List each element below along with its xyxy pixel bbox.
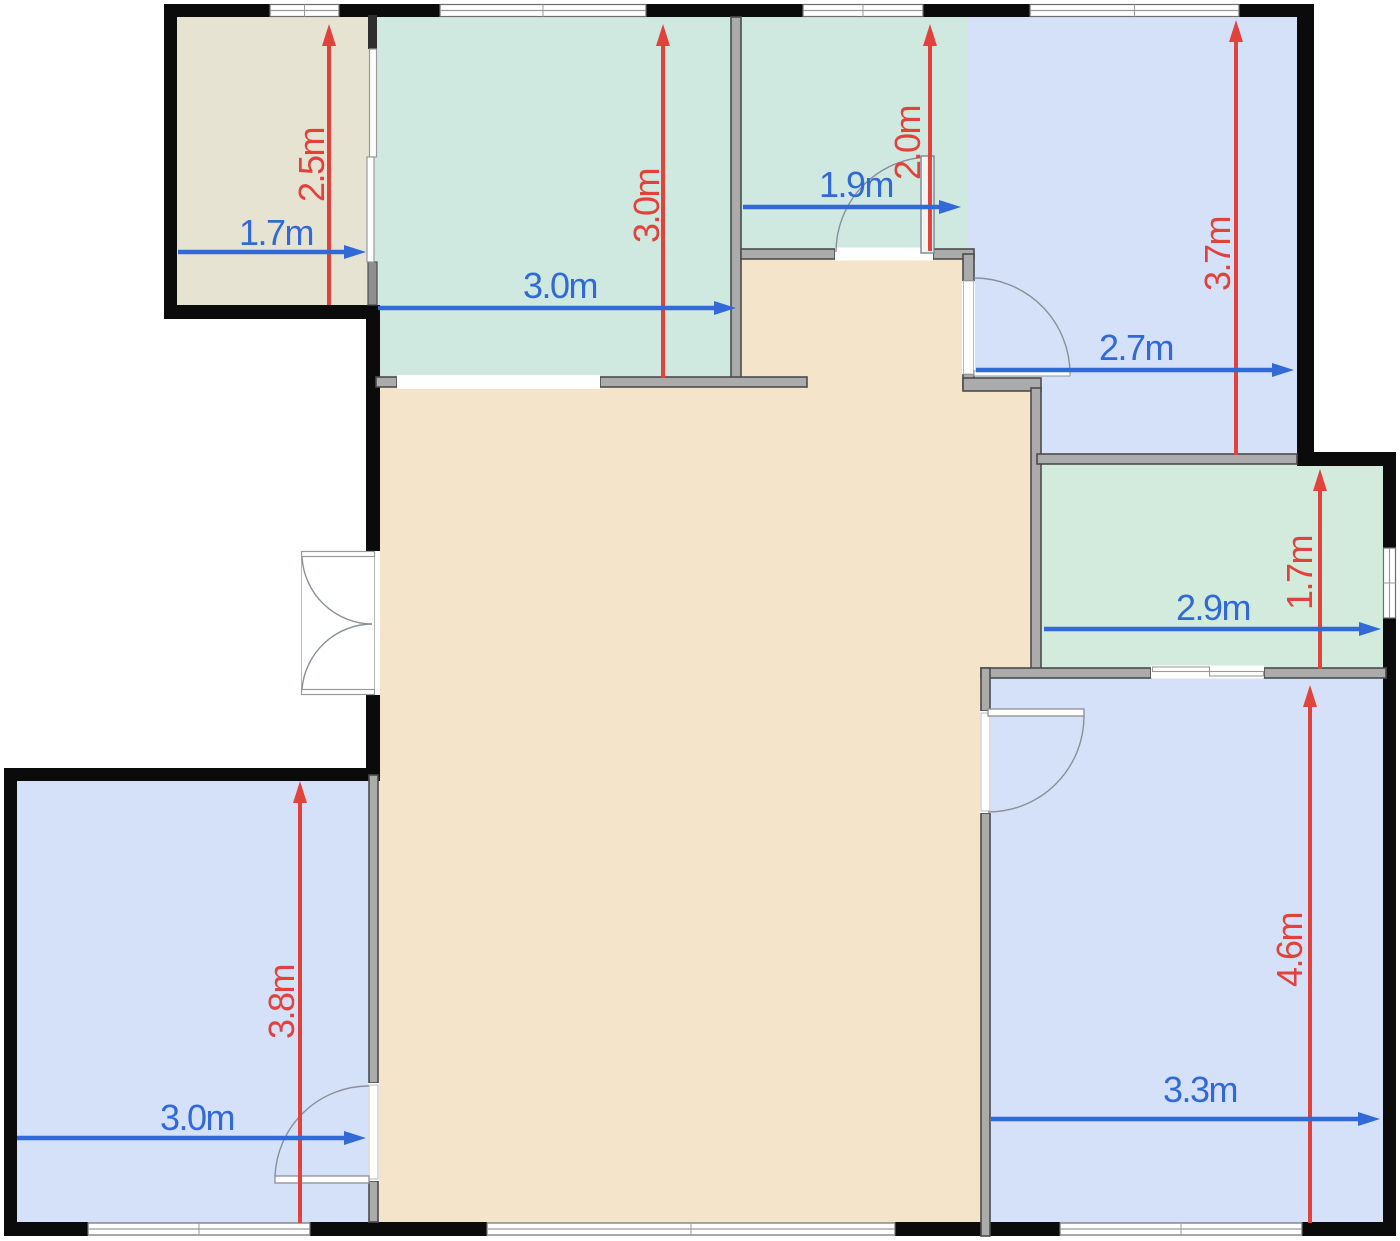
svg-text:3.0m: 3.0m	[160, 1097, 234, 1138]
svg-text:2.5m: 2.5m	[291, 128, 332, 202]
svg-text:1.7m: 1.7m	[1279, 536, 1320, 610]
svg-text:3.3m: 3.3m	[1163, 1069, 1237, 1110]
svg-text:1.7m: 1.7m	[239, 212, 313, 253]
svg-text:2.7m: 2.7m	[1099, 327, 1173, 368]
svg-text:2.0m: 2.0m	[887, 106, 928, 180]
svg-text:4.6m: 4.6m	[1269, 913, 1310, 987]
svg-text:3.0m: 3.0m	[523, 265, 597, 306]
svg-text:3.8m: 3.8m	[261, 965, 302, 1039]
svg-text:3.7m: 3.7m	[1197, 217, 1238, 291]
svg-text:2.9m: 2.9m	[1176, 587, 1250, 628]
svg-text:3.0m: 3.0m	[626, 169, 667, 243]
svg-text:1.9m: 1.9m	[819, 164, 893, 205]
